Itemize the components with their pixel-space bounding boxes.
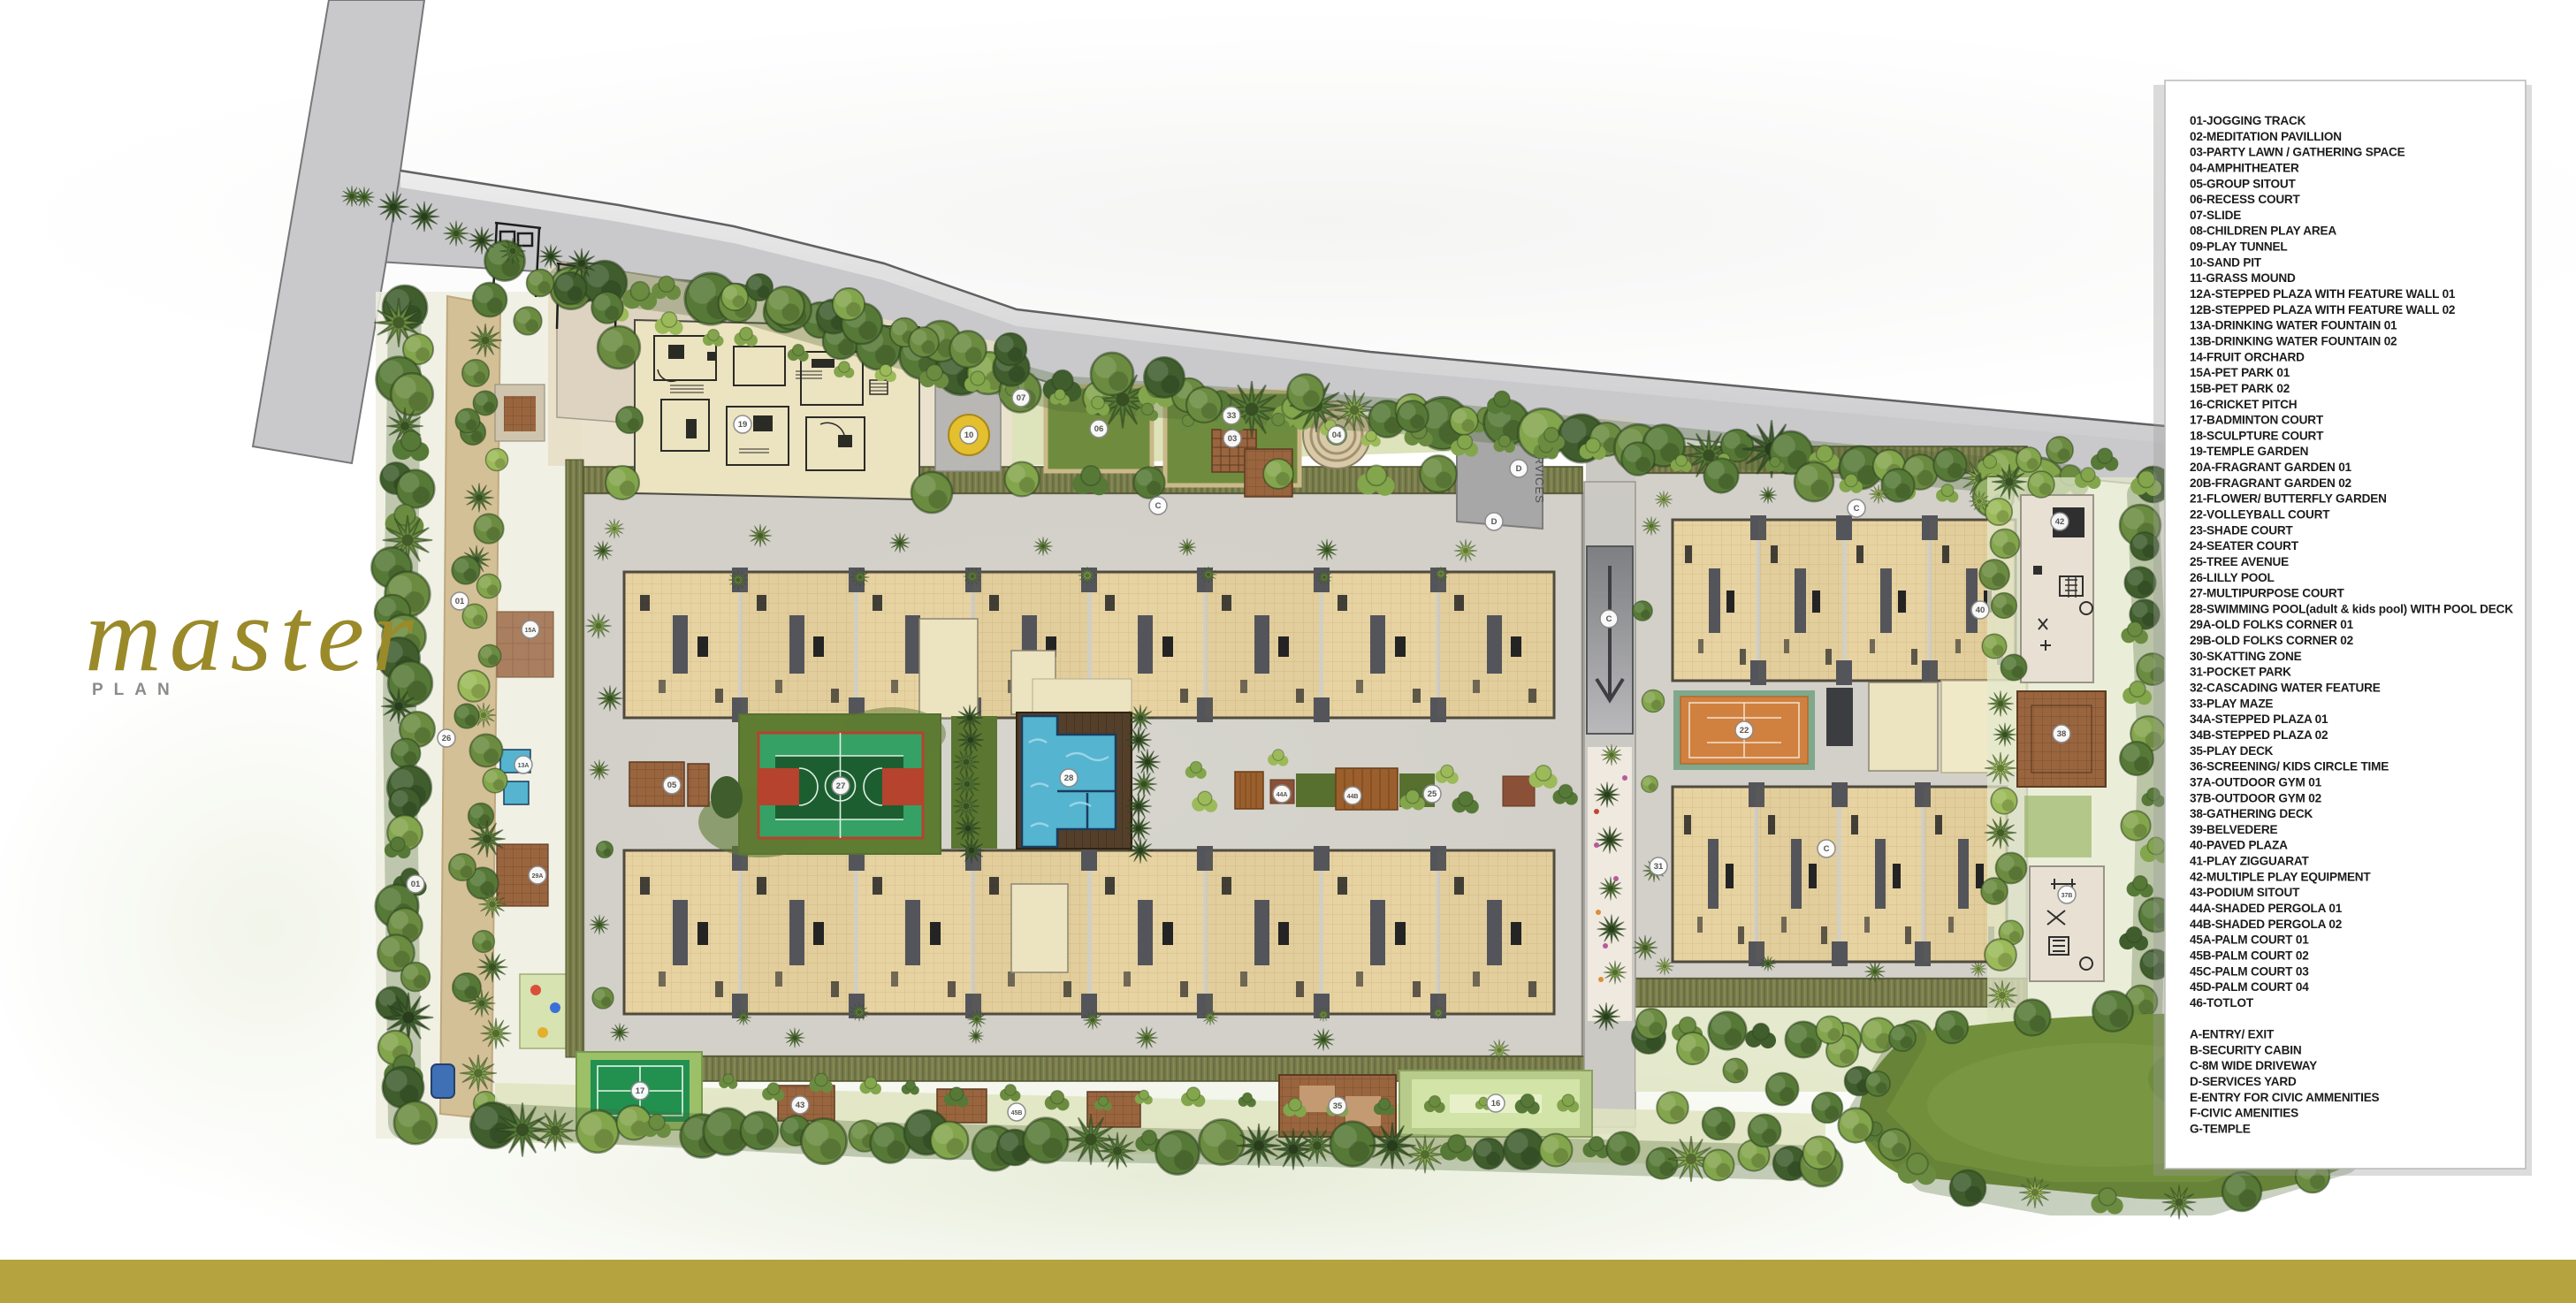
svg-text:35: 35 xyxy=(1333,1101,1343,1111)
svg-text:C: C xyxy=(1824,844,1830,854)
svg-text:27-MULTIPURPOSE COURT: 27-MULTIPURPOSE COURT xyxy=(2190,587,2344,600)
svg-text:16: 16 xyxy=(1491,1099,1501,1109)
svg-text:26: 26 xyxy=(442,734,452,743)
svg-text:07-SLIDE: 07-SLIDE xyxy=(2190,209,2241,222)
svg-text:28: 28 xyxy=(1064,773,1074,783)
svg-text:23-SHADE COURT: 23-SHADE COURT xyxy=(2190,523,2293,537)
svg-text:35-PLAY DECK: 35-PLAY DECK xyxy=(2190,744,2274,758)
svg-text:18-SCULPTURE COURT: 18-SCULPTURE COURT xyxy=(2190,429,2324,442)
svg-text:C: C xyxy=(1854,504,1860,514)
svg-text:24-SEATER COURT: 24-SEATER COURT xyxy=(2190,539,2299,552)
svg-text:12B-STEPPED PLAZA WITH FEATURE: 12B-STEPPED PLAZA WITH FEATURE WALL 02 xyxy=(2190,303,2456,316)
svg-text:B-SECURITY CABIN: B-SECURITY CABIN xyxy=(2190,1043,2301,1056)
svg-text:10: 10 xyxy=(964,431,974,440)
svg-text:11-GRASS MOUND: 11-GRASS MOUND xyxy=(2190,271,2296,285)
svg-text:36-SCREENING/ KIDS CIRCLE TIME: 36-SCREENING/ KIDS CIRCLE TIME xyxy=(2190,760,2389,773)
svg-text:14-FRUIT ORCHARD: 14-FRUIT ORCHARD xyxy=(2190,350,2305,363)
svg-text:39-BELVEDERE: 39-BELVEDERE xyxy=(2190,823,2277,836)
svg-text:15A-PET PARK 01: 15A-PET PARK 01 xyxy=(2190,366,2290,379)
svg-text:13A: 13A xyxy=(518,763,530,769)
svg-text:01: 01 xyxy=(411,880,421,889)
svg-text:28-SWIMMING POOL(adult & kids: 28-SWIMMING POOL(adult & kids pool) WITH… xyxy=(2190,602,2513,615)
svg-text:21-FLOWER/ BUTTERFLY GARDEN: 21-FLOWER/ BUTTERFLY GARDEN xyxy=(2190,492,2387,506)
svg-text:22: 22 xyxy=(1740,726,1749,735)
svg-text:12A-STEPPED PLAZA WITH FEATURE: 12A-STEPPED PLAZA WITH FEATURE WALL 01 xyxy=(2190,287,2456,301)
svg-text:16-CRICKET PITCH: 16-CRICKET PITCH xyxy=(2190,398,2297,411)
svg-text:31: 31 xyxy=(1654,862,1664,872)
svg-text:34A-STEPPED PLAZA 01: 34A-STEPPED PLAZA 01 xyxy=(2190,712,2328,726)
svg-text:C: C xyxy=(1155,501,1162,511)
svg-text:E-ENTRY FOR CIVIC AMMENITIES: E-ENTRY FOR CIVIC AMMENITIES xyxy=(2190,1091,2380,1104)
svg-text:03: 03 xyxy=(1228,434,1238,444)
svg-text:29A: 29A xyxy=(532,873,544,880)
svg-text:30-SKATTING ZONE: 30-SKATTING ZONE xyxy=(2190,650,2302,663)
svg-text:01-JOGGING TRACK: 01-JOGGING TRACK xyxy=(2190,114,2306,127)
svg-text:45C-PALM COURT 03: 45C-PALM COURT 03 xyxy=(2190,964,2309,978)
svg-text:45D-PALM COURT 04: 45D-PALM COURT 04 xyxy=(2190,980,2309,994)
svg-text:46-TOTLOT: 46-TOTLOT xyxy=(2190,996,2254,1010)
svg-text:20B-FRAGRANT GARDEN 02: 20B-FRAGRANT GARDEN 02 xyxy=(2190,476,2352,490)
svg-text:44B-SHADED PERGOLA 02: 44B-SHADED PERGOLA 02 xyxy=(2190,918,2343,931)
svg-text:06: 06 xyxy=(1094,424,1104,434)
svg-text:38-GATHERING DECK: 38-GATHERING DECK xyxy=(2190,807,2313,820)
svg-text:43: 43 xyxy=(796,1101,805,1110)
svg-text:45B-PALM COURT 02: 45B-PALM COURT 02 xyxy=(2190,949,2309,963)
svg-text:44A-SHADED PERGOLA 01: 44A-SHADED PERGOLA 01 xyxy=(2190,902,2343,915)
svg-text:01: 01 xyxy=(455,597,465,606)
svg-text:07: 07 xyxy=(1017,393,1026,403)
svg-text:17: 17 xyxy=(636,1086,645,1096)
svg-text:06-RECESS COURT: 06-RECESS COURT xyxy=(2190,193,2301,206)
svg-text:37B-OUTDOOR GYM 02: 37B-OUTDOOR GYM 02 xyxy=(2190,791,2322,804)
svg-text:33: 33 xyxy=(1227,411,1237,421)
svg-text:32-CASCADING WATER FEATURE: 32-CASCADING WATER FEATURE xyxy=(2190,682,2381,695)
svg-text:20A-FRAGRANT GARDEN 01: 20A-FRAGRANT GARDEN 01 xyxy=(2190,461,2352,474)
svg-text:19: 19 xyxy=(738,420,748,430)
svg-text:43-PODIUM SITOUT: 43-PODIUM SITOUT xyxy=(2190,886,2300,899)
svg-text:38: 38 xyxy=(2057,729,2067,739)
svg-text:09-PLAY TUNNEL: 09-PLAY TUNNEL xyxy=(2190,240,2288,254)
svg-text:08-CHILDREN PLAY AREA: 08-CHILDREN PLAY AREA xyxy=(2190,225,2336,238)
svg-text:31-POCKET PARK: 31-POCKET PARK xyxy=(2190,666,2291,679)
svg-text:29B-OLD FOLKS CORNER 02: 29B-OLD FOLKS CORNER 02 xyxy=(2190,634,2354,647)
svg-text:15A: 15A xyxy=(525,628,537,634)
svg-text:22-VOLLEYBALL COURT: 22-VOLLEYBALL COURT xyxy=(2190,508,2330,522)
svg-text:45A-PALM COURT 01: 45A-PALM COURT 01 xyxy=(2190,933,2309,947)
svg-text:PLAN: PLAN xyxy=(92,681,180,699)
svg-text:17-BADMINTON COURT: 17-BADMINTON COURT xyxy=(2190,414,2324,427)
svg-text:04: 04 xyxy=(1332,431,1342,440)
svg-text:05-GROUP SITOUT: 05-GROUP SITOUT xyxy=(2190,177,2297,190)
svg-text:05: 05 xyxy=(667,781,677,790)
svg-text:25: 25 xyxy=(1428,789,1437,799)
svg-text:master: master xyxy=(85,575,422,693)
svg-text:29A-OLD FOLKS CORNER 01: 29A-OLD FOLKS CORNER 01 xyxy=(2190,618,2354,631)
svg-text:D: D xyxy=(1516,464,1522,474)
svg-text:40-PAVED PLAZA: 40-PAVED PLAZA xyxy=(2190,839,2288,852)
svg-text:42-MULTIPLE PLAY EQUIPMENT: 42-MULTIPLE PLAY EQUIPMENT xyxy=(2190,870,2371,883)
svg-text:03-PARTY LAWN / GATHERING SPAC: 03-PARTY LAWN / GATHERING SPACE xyxy=(2190,146,2405,159)
svg-text:45B: 45B xyxy=(1011,1110,1023,1116)
svg-text:44A: 44A xyxy=(1277,792,1288,798)
svg-text:13A-DRINKING WATER FOUNTAIN 01: 13A-DRINKING WATER FOUNTAIN 01 xyxy=(2190,319,2397,332)
svg-text:19-TEMPLE GARDEN: 19-TEMPLE GARDEN xyxy=(2190,445,2308,458)
svg-text:13B-DRINKING WATER FOUNTAIN 02: 13B-DRINKING WATER FOUNTAIN 02 xyxy=(2190,335,2397,348)
svg-text:15B-PET PARK 02: 15B-PET PARK 02 xyxy=(2190,382,2290,395)
svg-text:26-LILLY POOL: 26-LILLY POOL xyxy=(2190,571,2275,584)
svg-text:C: C xyxy=(1606,614,1612,624)
svg-text:42: 42 xyxy=(2055,517,2065,527)
svg-text:27: 27 xyxy=(836,781,846,791)
svg-text:D: D xyxy=(1491,517,1498,527)
svg-text:10-SAND PIT: 10-SAND PIT xyxy=(2190,255,2262,269)
svg-text:G-TEMPLE: G-TEMPLE xyxy=(2190,1123,2251,1136)
svg-text:04-AMPHITHEATER: 04-AMPHITHEATER xyxy=(2190,162,2299,175)
svg-text:C-8M WIDE DRIVEWAY: C-8M WIDE DRIVEWAY xyxy=(2190,1059,2317,1072)
svg-text:25-TREE AVENUE: 25-TREE AVENUE xyxy=(2190,555,2289,568)
svg-text:37A-OUTDOOR GYM 01: 37A-OUTDOOR GYM 01 xyxy=(2190,775,2322,789)
svg-text:34B-STEPPED PLAZA 02: 34B-STEPPED PLAZA 02 xyxy=(2190,728,2328,742)
svg-text:40: 40 xyxy=(1976,606,1985,615)
svg-text:02-MEDITATION PAVILLION: 02-MEDITATION PAVILLION xyxy=(2190,130,2342,143)
svg-text:41-PLAY ZIGGUARAT: 41-PLAY ZIGGUARAT xyxy=(2190,855,2309,868)
svg-text:37B: 37B xyxy=(2062,893,2073,899)
svg-text:F-CIVIC AMENITIES: F-CIVIC AMENITIES xyxy=(2190,1107,2298,1120)
svg-text:33-PLAY MAZE: 33-PLAY MAZE xyxy=(2190,697,2273,710)
svg-text:A-ENTRY/ EXIT: A-ENTRY/ EXIT xyxy=(2190,1028,2275,1041)
svg-text:44B: 44B xyxy=(1347,794,1359,800)
svg-text:D-SERVICES YARD: D-SERVICES YARD xyxy=(2190,1075,2297,1088)
